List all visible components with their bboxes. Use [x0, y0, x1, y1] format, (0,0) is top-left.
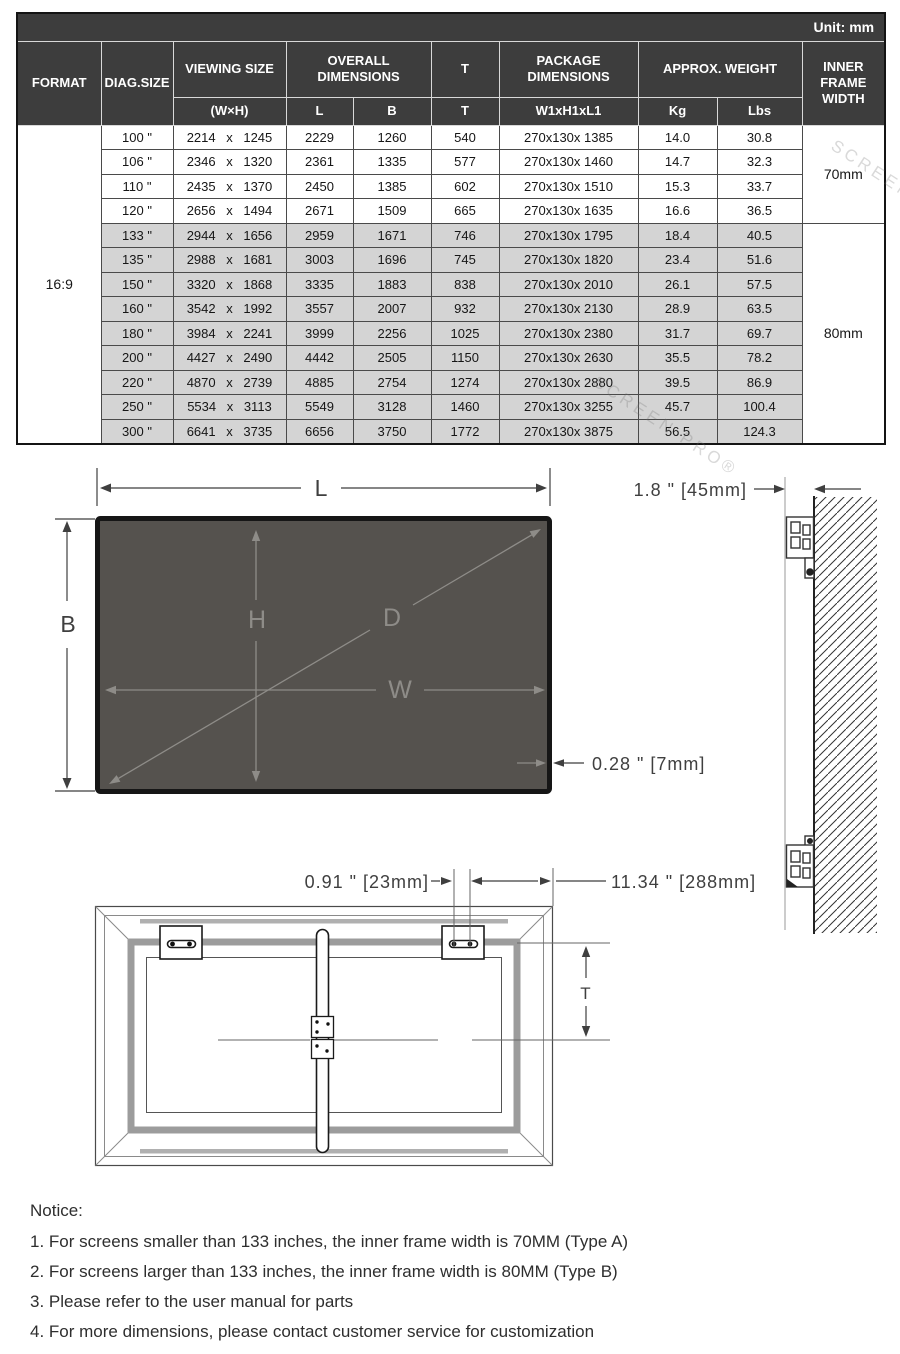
overall-b-cell: 1671 [353, 223, 431, 248]
unit-label: Unit: mm [17, 13, 885, 41]
col-header-lbs: Lbs [717, 97, 802, 125]
spec-row: 300 "6641 x 3735665637501772270x130x 387… [17, 419, 885, 444]
overall-l-cell: 2671 [286, 199, 353, 224]
spec-row: 120 "2656 x 149426711509665270x130x 1635… [17, 199, 885, 224]
thickness-t-cell: 665 [431, 199, 499, 224]
thickness-t-cell: 746 [431, 223, 499, 248]
dim-label-L: L [315, 475, 328, 501]
package-dimensions-cell: 270x130x 1460 [499, 150, 638, 175]
weight-lbs-cell: 51.6 [717, 248, 802, 273]
viewing-size-cell: 3542 x 1992 [173, 297, 286, 322]
package-dimensions-cell: 270x130x 2380 [499, 321, 638, 346]
spec-row: 180 "3984 x 2241399922561025270x130x 238… [17, 321, 885, 346]
diag-size-cell: 133 " [101, 223, 173, 248]
col-header-approx-weight: APPROX. WEIGHT [638, 41, 802, 97]
spec-row: 16:9100 "2214 x 124522291260540270x130x … [17, 125, 885, 150]
dim-label-W: W [388, 676, 412, 704]
overall-b-cell: 2754 [353, 370, 431, 395]
weight-kg-cell: 14.7 [638, 150, 717, 175]
notice-title: Notice: [30, 1196, 628, 1226]
package-dimensions-cell: 270x130x 2010 [499, 272, 638, 297]
overall-l-cell: 3335 [286, 272, 353, 297]
weight-lbs-cell: 78.2 [717, 346, 802, 371]
front-view-diagram: L B H D W 0.28 " [7 [55, 468, 705, 792]
bracket-spacing-dim-label: 11.34 " [288mm] [611, 872, 756, 892]
technical-drawings: L B H D W 0.28 " [7 [0, 450, 900, 1210]
weight-lbs-cell: 124.3 [717, 419, 802, 444]
weight-kg-cell: 56.5 [638, 419, 717, 444]
package-dimensions-cell: 270x130x 1635 [499, 199, 638, 224]
overall-l-cell: 5549 [286, 395, 353, 420]
viewing-size-cell: 2435 x 1370 [173, 174, 286, 199]
package-dimensions-cell: 270x130x 3255 [499, 395, 638, 420]
col-header-diag-size: DIAG.SIZE [101, 41, 173, 125]
diag-size-cell: 100 " [101, 125, 173, 150]
notice-item: 1. For screens smaller than 133 inches, … [30, 1227, 628, 1257]
weight-kg-cell: 23.4 [638, 248, 717, 273]
spec-row: 220 "4870 x 2739488527541274270x130x 288… [17, 370, 885, 395]
spec-row: 160 "3542 x 199235572007932270x130x 2130… [17, 297, 885, 322]
wall-hatching [815, 497, 877, 933]
format-value-cell: 16:9 [17, 125, 101, 444]
diag-size-cell: 120 " [101, 199, 173, 224]
col-header-kg: Kg [638, 97, 717, 125]
package-dimensions-cell: 270x130x 2880 [499, 370, 638, 395]
weight-kg-cell: 45.7 [638, 395, 717, 420]
bottom-frame-profile [787, 836, 815, 887]
spec-row: 250 "5534 x 3113554931281460270x130x 325… [17, 395, 885, 420]
spec-table: Unit: mm FORMAT DIAG.SIZE VIEWING SIZE O… [16, 12, 886, 445]
thickness-t-cell: 1150 [431, 346, 499, 371]
diag-size-cell: 180 " [101, 321, 173, 346]
package-dimensions-cell: 270x130x 1820 [499, 248, 638, 273]
col-header-t-sub: T [431, 97, 499, 125]
thickness-dim-label: 0.28 " [7mm] [592, 754, 705, 774]
weight-kg-cell: 26.1 [638, 272, 717, 297]
diag-size-cell: 110 " [101, 174, 173, 199]
overall-b-cell: 2505 [353, 346, 431, 371]
col-header-wxh: (W×H) [173, 97, 286, 125]
diag-size-cell: 250 " [101, 395, 173, 420]
thickness-t-cell: 577 [431, 150, 499, 175]
col-header-package-dimensions: PACKAGE DIMENSIONS [499, 41, 638, 97]
notice-item: 4. For more dimensions, please contact c… [30, 1317, 628, 1347]
weight-kg-cell: 39.5 [638, 370, 717, 395]
thickness-t-cell: 1772 [431, 419, 499, 444]
weight-lbs-cell: 30.8 [717, 125, 802, 150]
col-header-overall-dimensions: OVERALL DIMENSIONS [286, 41, 431, 97]
thickness-t-cell: 838 [431, 272, 499, 297]
col-header-l: L [286, 97, 353, 125]
weight-lbs-cell: 86.9 [717, 370, 802, 395]
viewing-size-cell: 2988 x 1681 [173, 248, 286, 273]
t-dim-label: T [580, 984, 591, 1003]
overall-b-cell: 1696 [353, 248, 431, 273]
depth-dim-label: 1.8 " [45mm] [634, 480, 747, 500]
inner-frame-70-cell: 70mm [802, 125, 885, 223]
overall-b-cell: 1335 [353, 150, 431, 175]
overall-b-cell: 1260 [353, 125, 431, 150]
package-dimensions-cell: 270x130x 1795 [499, 223, 638, 248]
top-hanging-rail [140, 919, 508, 924]
back-view-diagram: 0.91 " [23mm] 11.34 " [288mm] T [96, 868, 757, 1166]
overall-b-cell: 1385 [353, 174, 431, 199]
bracket-offset-dim-label: 0.91 " [23mm] [305, 872, 429, 892]
weight-lbs-cell: 40.5 [717, 223, 802, 248]
col-header-w1h1l1: W1xH1xL1 [499, 97, 638, 125]
weight-kg-cell: 18.4 [638, 223, 717, 248]
overall-l-cell: 3003 [286, 248, 353, 273]
viewing-size-cell: 6641 x 3735 [173, 419, 286, 444]
thickness-t-cell: 932 [431, 297, 499, 322]
unit-row: Unit: mm [17, 13, 885, 41]
viewing-size-cell: 4427 x 2490 [173, 346, 286, 371]
weight-kg-cell: 14.0 [638, 125, 717, 150]
col-header-t-group: T [431, 41, 499, 97]
weight-lbs-cell: 100.4 [717, 395, 802, 420]
spec-sheet-page: Unit: mm FORMAT DIAG.SIZE VIEWING SIZE O… [0, 0, 900, 1354]
mounting-bracket-left [160, 926, 202, 959]
package-dimensions-cell: 270x130x 1385 [499, 125, 638, 150]
viewing-size-cell: 3320 x 1868 [173, 272, 286, 297]
diag-size-cell: 220 " [101, 370, 173, 395]
package-dimensions-cell: 270x130x 2630 [499, 346, 638, 371]
dim-label-B: B [60, 611, 75, 637]
overall-l-cell: 2229 [286, 125, 353, 150]
spec-row: 110 "2435 x 137024501385602270x130x 1510… [17, 174, 885, 199]
overall-l-cell: 4885 [286, 370, 353, 395]
side-view-diagram: 1.8 " [45mm] [634, 477, 877, 934]
spec-row: 200 "4427 x 2490444225051150270x130x 263… [17, 346, 885, 371]
inner-frame-80-cell: 80mm [802, 223, 885, 444]
overall-l-cell: 3999 [286, 321, 353, 346]
col-header-inner-frame-width: INNER FRAME WIDTH [802, 41, 885, 125]
overall-l-cell: 6656 [286, 419, 353, 444]
overall-l-cell: 3557 [286, 297, 353, 322]
thickness-t-cell: 1274 [431, 370, 499, 395]
diag-size-cell: 150 " [101, 272, 173, 297]
overall-l-cell: 2959 [286, 223, 353, 248]
spec-row: 106 "2346 x 132023611335577270x130x 1460… [17, 150, 885, 175]
weight-kg-cell: 31.7 [638, 321, 717, 346]
weight-lbs-cell: 69.7 [717, 321, 802, 346]
dim-label-H: H [248, 606, 266, 634]
package-dimensions-cell: 270x130x 3875 [499, 419, 638, 444]
weight-lbs-cell: 57.5 [717, 272, 802, 297]
diag-size-cell: 200 " [101, 346, 173, 371]
thickness-t-cell: 1460 [431, 395, 499, 420]
spec-row: 150 "3320 x 186833351883838270x130x 2010… [17, 272, 885, 297]
weight-kg-cell: 16.6 [638, 199, 717, 224]
spec-table-body: 16:9100 "2214 x 124522291260540270x130x … [17, 125, 885, 444]
col-header-viewing-size: VIEWING SIZE [173, 41, 286, 97]
diag-size-cell: 160 " [101, 297, 173, 322]
overall-l-cell: 2361 [286, 150, 353, 175]
top-frame-profile [787, 517, 815, 578]
package-dimensions-cell: 270x130x 2130 [499, 297, 638, 322]
dim-label-D: D [383, 604, 401, 632]
thickness-t-cell: 745 [431, 248, 499, 273]
weight-kg-cell: 35.5 [638, 346, 717, 371]
overall-b-cell: 3128 [353, 395, 431, 420]
weight-lbs-cell: 33.7 [717, 174, 802, 199]
col-header-b: B [353, 97, 431, 125]
notice-item: 3. Please refer to the user manual for p… [30, 1287, 628, 1317]
mounting-bracket-right [442, 926, 484, 959]
weight-lbs-cell: 63.5 [717, 297, 802, 322]
viewing-size-cell: 2346 x 1320 [173, 150, 286, 175]
overall-l-cell: 4442 [286, 346, 353, 371]
header-row-groups: FORMAT DIAG.SIZE VIEWING SIZE OVERALL DI… [17, 41, 885, 97]
overall-b-cell: 2007 [353, 297, 431, 322]
package-dimensions-cell: 270x130x 1510 [499, 174, 638, 199]
viewing-size-cell: 2944 x 1656 [173, 223, 286, 248]
overall-b-cell: 1509 [353, 199, 431, 224]
col-header-format: FORMAT [17, 41, 101, 125]
thickness-t-cell: 602 [431, 174, 499, 199]
diag-size-cell: 300 " [101, 419, 173, 444]
overall-b-cell: 1883 [353, 272, 431, 297]
viewing-size-cell: 3984 x 2241 [173, 321, 286, 346]
viewing-size-cell: 2656 x 1494 [173, 199, 286, 224]
overall-b-cell: 3750 [353, 419, 431, 444]
spec-row: 133 "2944 x 165629591671746270x130x 1795… [17, 223, 885, 248]
viewing-size-cell: 5534 x 3113 [173, 395, 286, 420]
notice-item: 2. For screens larger than 133 inches, t… [30, 1257, 628, 1287]
spec-row: 135 "2988 x 168130031696745270x130x 1820… [17, 248, 885, 273]
weight-kg-cell: 28.9 [638, 297, 717, 322]
diag-size-cell: 106 " [101, 150, 173, 175]
thickness-t-cell: 540 [431, 125, 499, 150]
overall-l-cell: 2450 [286, 174, 353, 199]
weight-lbs-cell: 32.3 [717, 150, 802, 175]
notice-block: Notice: 1. For screens smaller than 133 … [30, 1196, 628, 1347]
diag-size-cell: 135 " [101, 248, 173, 273]
thickness-t-cell: 1025 [431, 321, 499, 346]
weight-lbs-cell: 36.5 [717, 199, 802, 224]
viewing-size-cell: 2214 x 1245 [173, 125, 286, 150]
weight-kg-cell: 15.3 [638, 174, 717, 199]
overall-b-cell: 2256 [353, 321, 431, 346]
viewing-size-cell: 4870 x 2739 [173, 370, 286, 395]
